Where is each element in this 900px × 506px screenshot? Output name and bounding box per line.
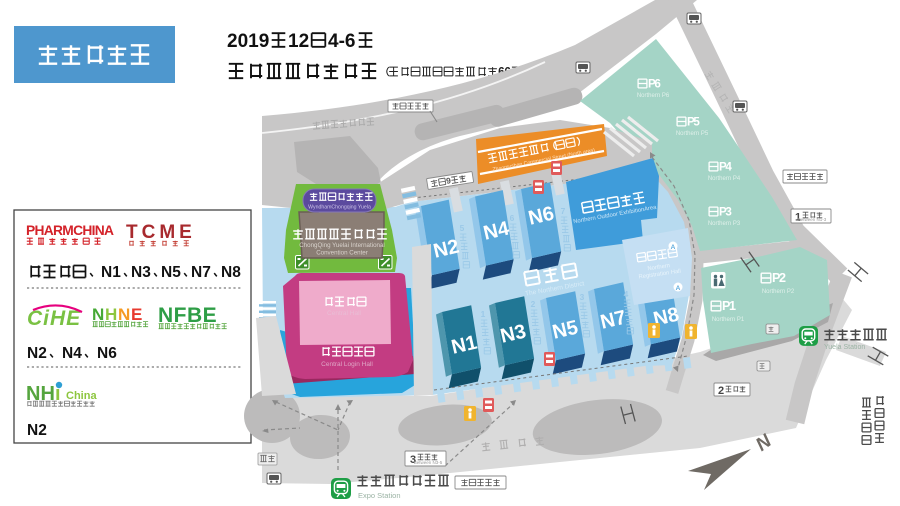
svg-text:N7: N7 xyxy=(191,264,211,281)
svg-text:A: A xyxy=(671,244,676,251)
svg-text:N4: N4 xyxy=(62,345,82,362)
svg-text:Yuela Station: Yuela Station xyxy=(824,344,865,351)
svg-text:N8: N8 xyxy=(221,264,241,281)
svg-text:12: 12 xyxy=(288,31,309,52)
svg-text:A: A xyxy=(676,285,681,292)
svg-text:N2: N2 xyxy=(27,345,47,362)
svg-text:Northern P2: Northern P2 xyxy=(762,289,795,295)
svg-text:Central Login Hall: Central Login Hall xyxy=(321,361,373,368)
svg-text:TCME: TCME xyxy=(126,222,196,243)
svg-text:Northern P3: Northern P3 xyxy=(708,221,741,227)
svg-text:4-6: 4-6 xyxy=(328,31,355,52)
svg-text:1: 1 xyxy=(729,299,736,313)
svg-text:PHARMCHINA: PHARMCHINA xyxy=(26,223,114,238)
svg-text:3: 3 xyxy=(725,205,732,218)
svg-text:Between N1-3: Between N1-3 xyxy=(798,217,827,222)
svg-text:Expo Station: Expo Station xyxy=(358,491,401,500)
svg-text:2: 2 xyxy=(779,271,786,285)
svg-text:2019: 2019 xyxy=(227,31,269,52)
svg-text:N6: N6 xyxy=(97,345,117,362)
svg-text:7: 7 xyxy=(561,206,566,216)
svg-text:5: 5 xyxy=(460,223,465,233)
svg-text:4: 4 xyxy=(725,160,732,173)
svg-text:6: 6 xyxy=(510,213,515,223)
svg-text:4: 4 xyxy=(624,289,629,299)
svg-text:3: 3 xyxy=(580,292,585,302)
svg-text:Central Hall: Central Hall xyxy=(327,310,362,317)
svg-text:N: N xyxy=(92,305,104,324)
svg-text:N5: N5 xyxy=(161,264,181,281)
svg-text:Northern P5: Northern P5 xyxy=(676,131,709,137)
svg-text:WyndhamChongqing Yuela: WyndhamChongqing Yuela xyxy=(308,205,371,211)
svg-text:ChongQing Yuelai International: ChongQing Yuelai International xyxy=(299,242,385,249)
svg-text:N3: N3 xyxy=(131,264,151,281)
svg-text:E: E xyxy=(131,305,142,324)
svg-text:N2: N2 xyxy=(27,422,47,439)
svg-text:Convention Center: Convention Center xyxy=(316,250,368,257)
svg-text:6: 6 xyxy=(654,77,661,90)
svg-text:N1: N1 xyxy=(101,264,121,281)
svg-text:China: China xyxy=(66,390,97,402)
svg-text:CiHE: CiHE xyxy=(27,307,81,330)
svg-text:Northern P6: Northern P6 xyxy=(637,93,670,99)
svg-text:Between N3-5: Between N3-5 xyxy=(414,460,443,465)
svg-text:H: H xyxy=(105,305,117,324)
svg-text:2: 2 xyxy=(718,385,724,397)
svg-text:Northern P4: Northern P4 xyxy=(708,176,741,182)
svg-text:N: N xyxy=(118,305,130,324)
svg-text:5: 5 xyxy=(693,115,700,128)
svg-text:1: 1 xyxy=(481,309,486,319)
svg-text:Northern P1: Northern P1 xyxy=(712,317,745,323)
svg-text:2: 2 xyxy=(531,299,536,309)
